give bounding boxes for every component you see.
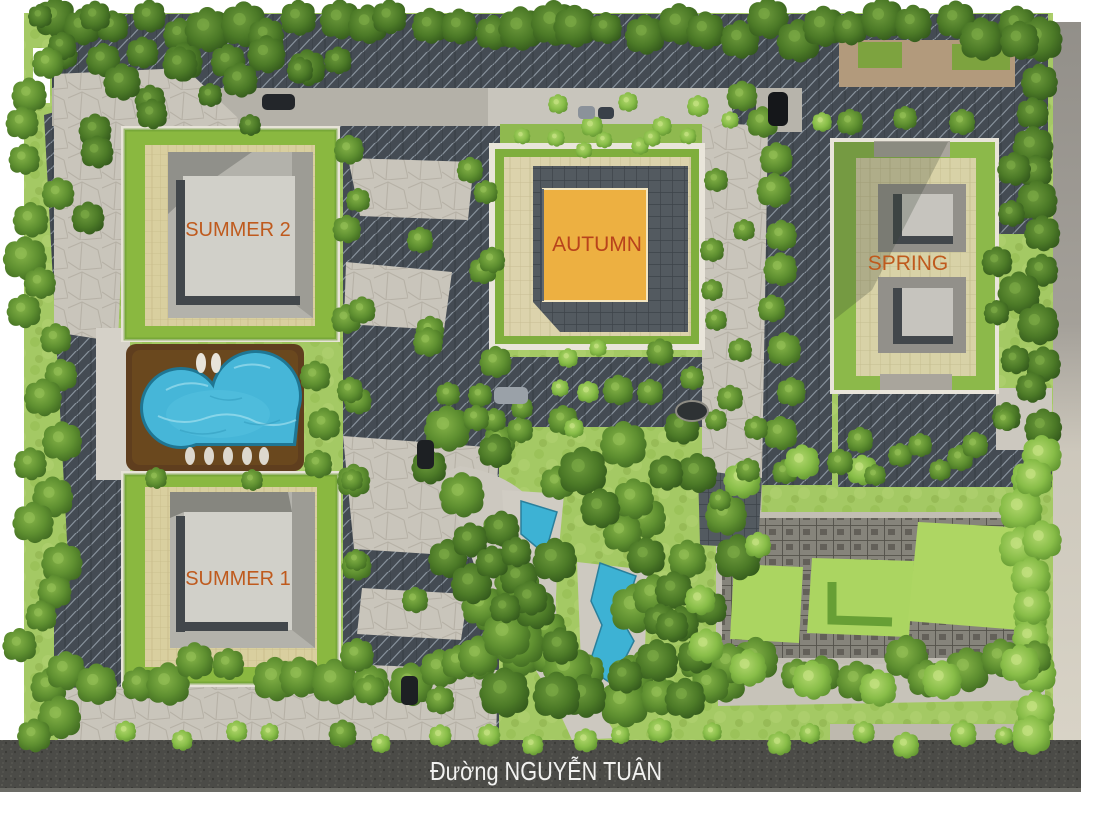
svg-text:SUMMER 2: SUMMER 2 [185, 219, 291, 241]
svg-text:Đường NGUYỄN TUÂN: Đường NGUYỄN TUÂN [430, 756, 662, 786]
svg-text:SPRING: SPRING [868, 252, 949, 275]
svg-text:AUTUMN: AUTUMN [552, 233, 642, 256]
svg-text:SUMMER 1: SUMMER 1 [185, 568, 291, 590]
